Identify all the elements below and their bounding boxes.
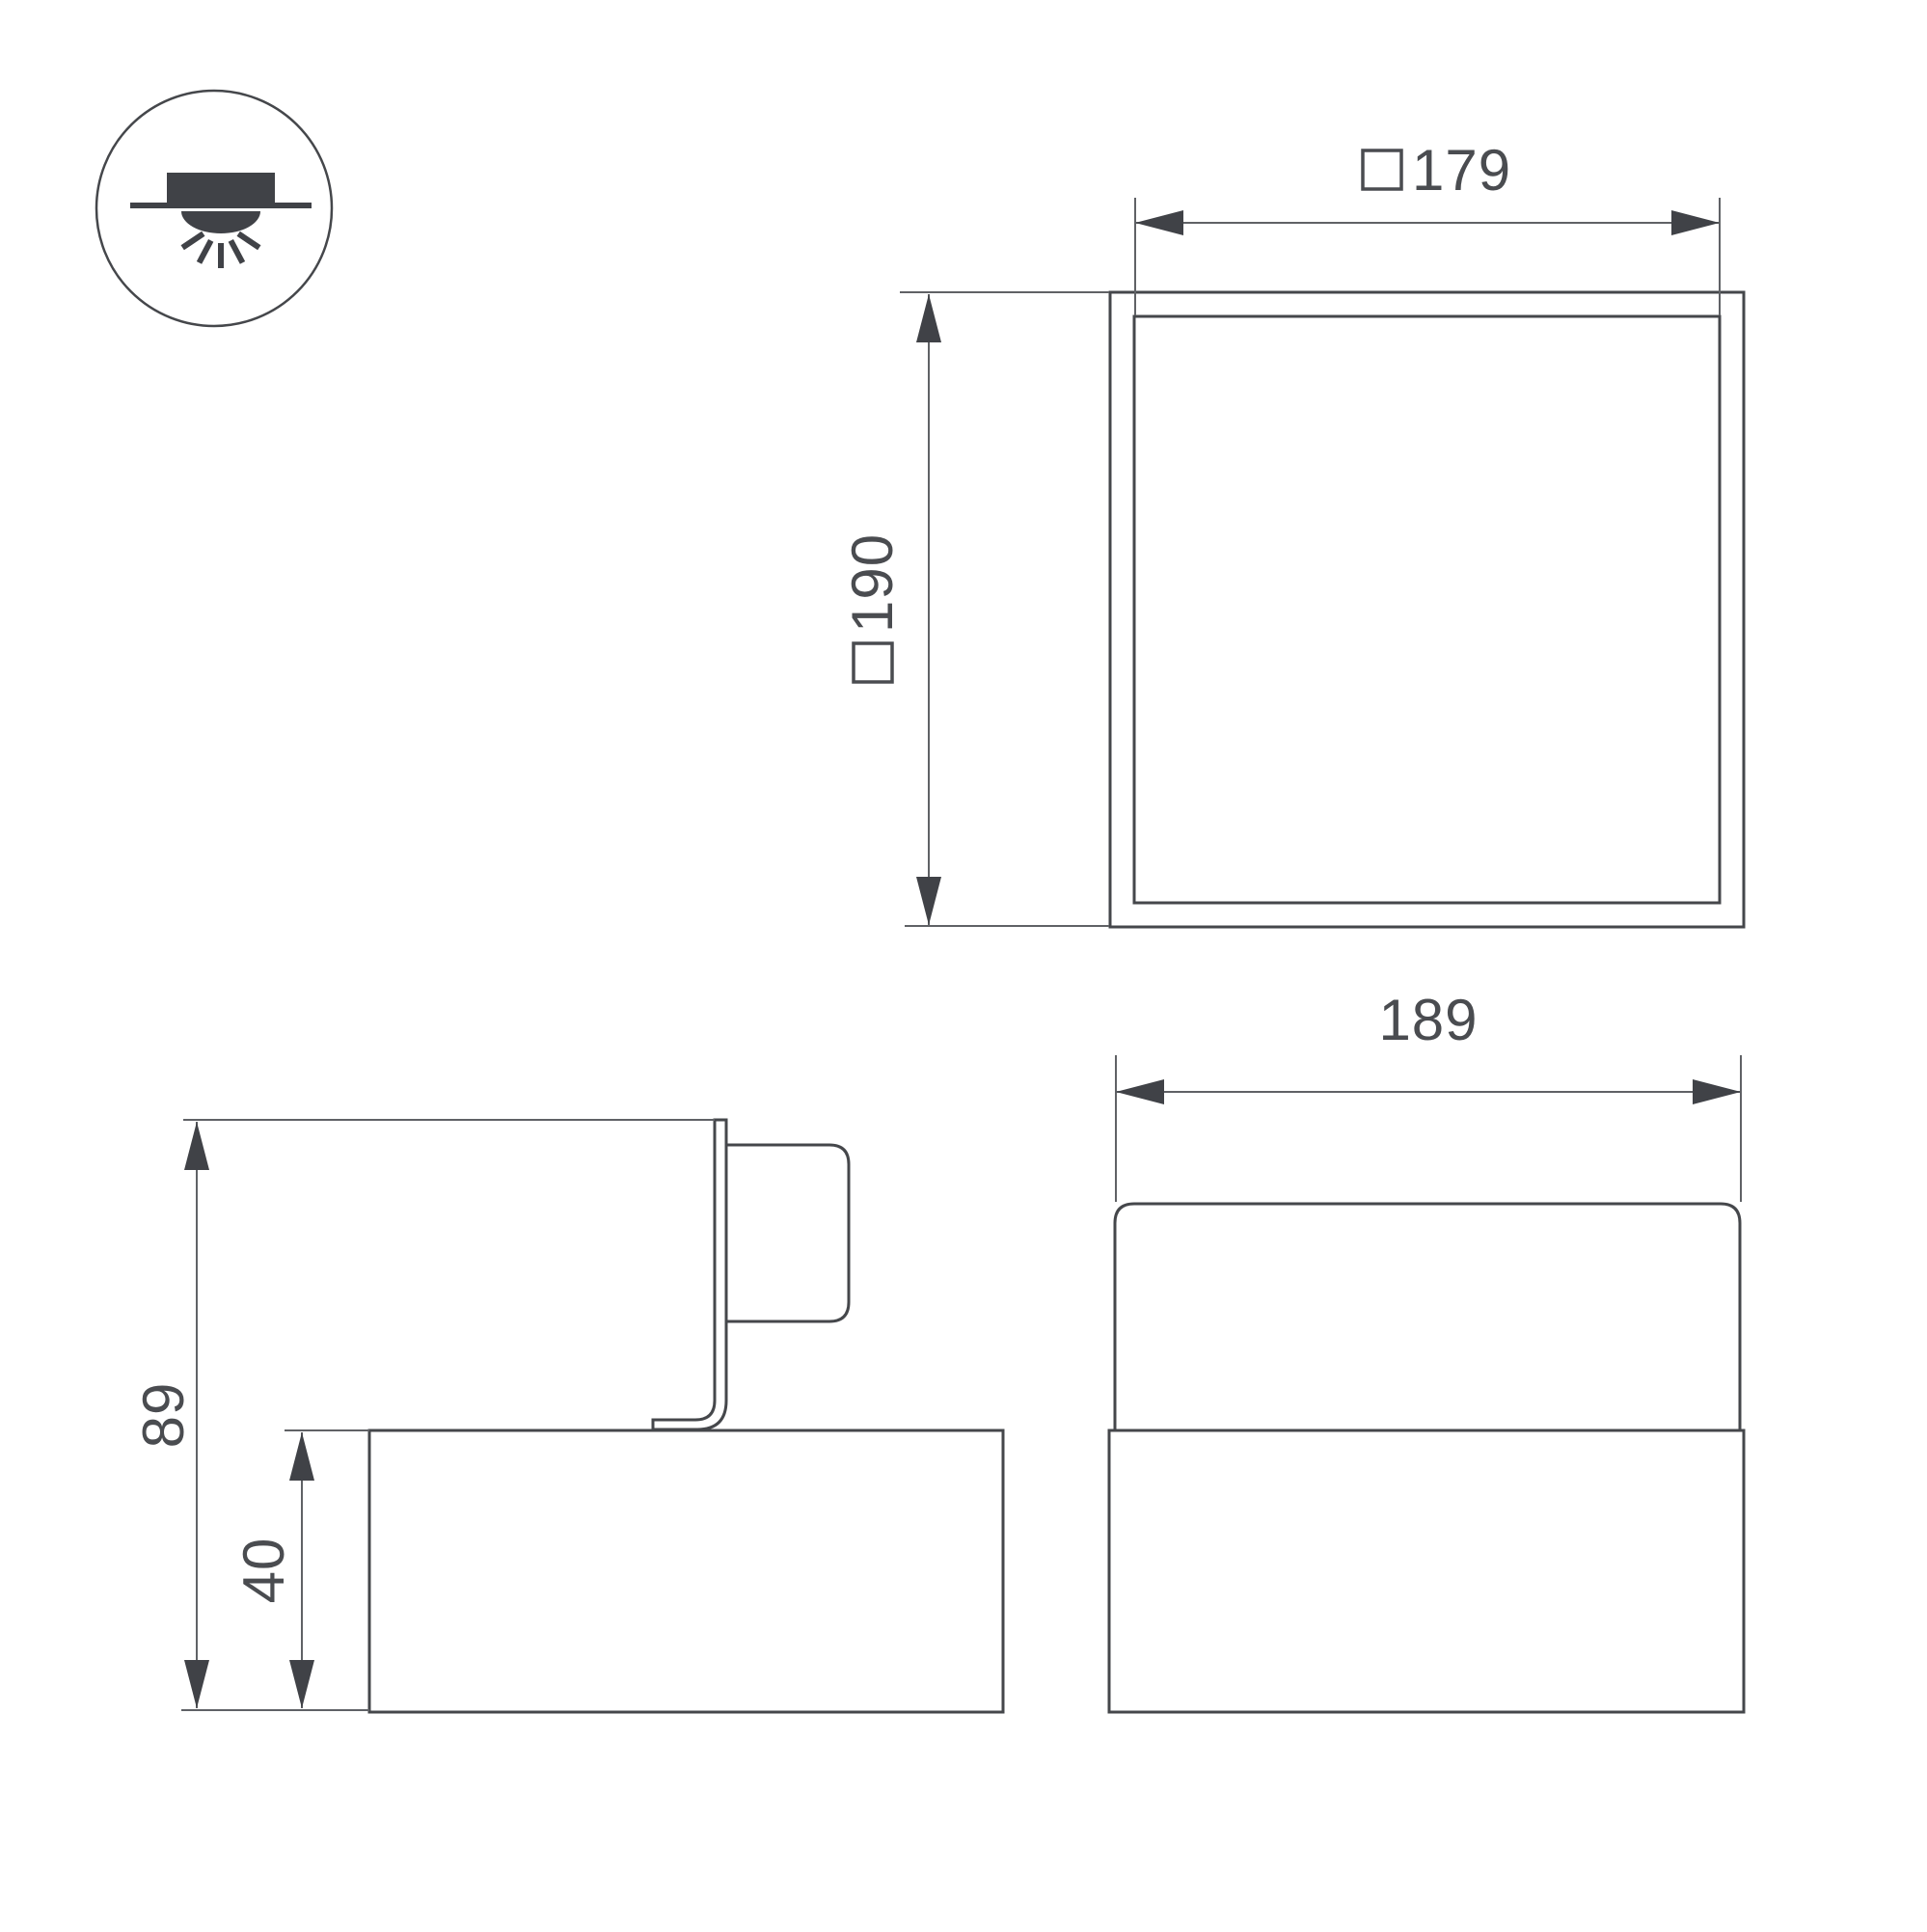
square-dimension-symbol <box>854 643 892 682</box>
arrowhead-top <box>916 294 941 342</box>
arrowhead-left <box>1135 210 1183 235</box>
drawing-canvas: 179 190 89 <box>0 0 1927 1927</box>
light-ray <box>182 233 204 247</box>
dimension-40: 40 <box>231 1430 369 1708</box>
light-ray <box>238 233 259 247</box>
front-view-base <box>1109 1430 1744 1712</box>
arrowhead-top <box>184 1122 209 1170</box>
arrowhead-bottom <box>184 1660 209 1708</box>
lamp-dome-shape <box>181 211 260 233</box>
arrowhead-right <box>1693 1079 1741 1104</box>
downlight-can-shape <box>167 173 275 204</box>
mounting-bracket-plate <box>653 1120 726 1429</box>
dimension-label: 189 <box>1378 988 1478 1052</box>
dimension-179: 179 <box>1135 138 1720 315</box>
driver-box <box>726 1145 849 1321</box>
side-view-body <box>369 1430 1003 1712</box>
dimension-label: 179 <box>1412 138 1511 203</box>
arrowhead-top <box>289 1432 314 1481</box>
arrowhead-left <box>1116 1079 1164 1104</box>
front-view: 189 <box>1109 988 1744 1712</box>
mount-type-badge <box>96 91 332 326</box>
recessed-downlight-icon <box>130 173 312 268</box>
arrowhead-bottom <box>289 1660 314 1708</box>
front-view-housing <box>1115 1204 1740 1430</box>
light-ray <box>200 240 211 262</box>
rotated-label-group: 190 <box>840 533 905 682</box>
arrowhead-bottom <box>916 877 941 925</box>
dimension-drawing: 179 190 89 <box>0 0 1927 1927</box>
dimension-label: 40 <box>231 1537 296 1604</box>
top-view-inner-square <box>1134 316 1720 903</box>
dimension-89: 89 <box>131 1120 715 1710</box>
top-view: 179 190 <box>840 138 1744 927</box>
dimension-189: 189 <box>1116 988 1741 1202</box>
arrowhead-right <box>1671 210 1720 235</box>
dimension-label: 190 <box>840 533 905 633</box>
light-ray <box>231 240 242 262</box>
rotated-label-group: 40 <box>231 1537 296 1604</box>
square-dimension-symbol <box>1363 150 1401 189</box>
rotated-label-group: 89 <box>131 1382 196 1449</box>
top-view-outer-square <box>1110 292 1744 927</box>
dimension-190: 190 <box>840 292 1109 926</box>
side-view: 89 40 <box>131 1120 1003 1712</box>
dimension-label: 89 <box>131 1382 196 1449</box>
